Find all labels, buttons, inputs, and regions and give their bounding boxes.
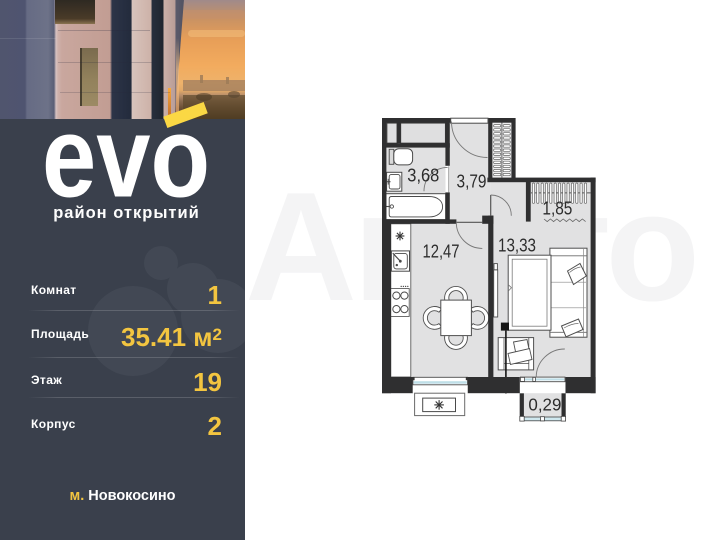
svg-text:0,29: 0,29 — [528, 395, 561, 415]
svg-text:3,68: 3,68 — [407, 166, 439, 186]
svg-text:12,47: 12,47 — [423, 242, 460, 262]
svg-text:evo: evo — [42, 110, 210, 210]
svg-text:3,79: 3,79 — [457, 172, 487, 192]
svg-text:13,33: 13,33 — [498, 236, 536, 256]
svg-text:1,85: 1,85 — [542, 199, 572, 219]
